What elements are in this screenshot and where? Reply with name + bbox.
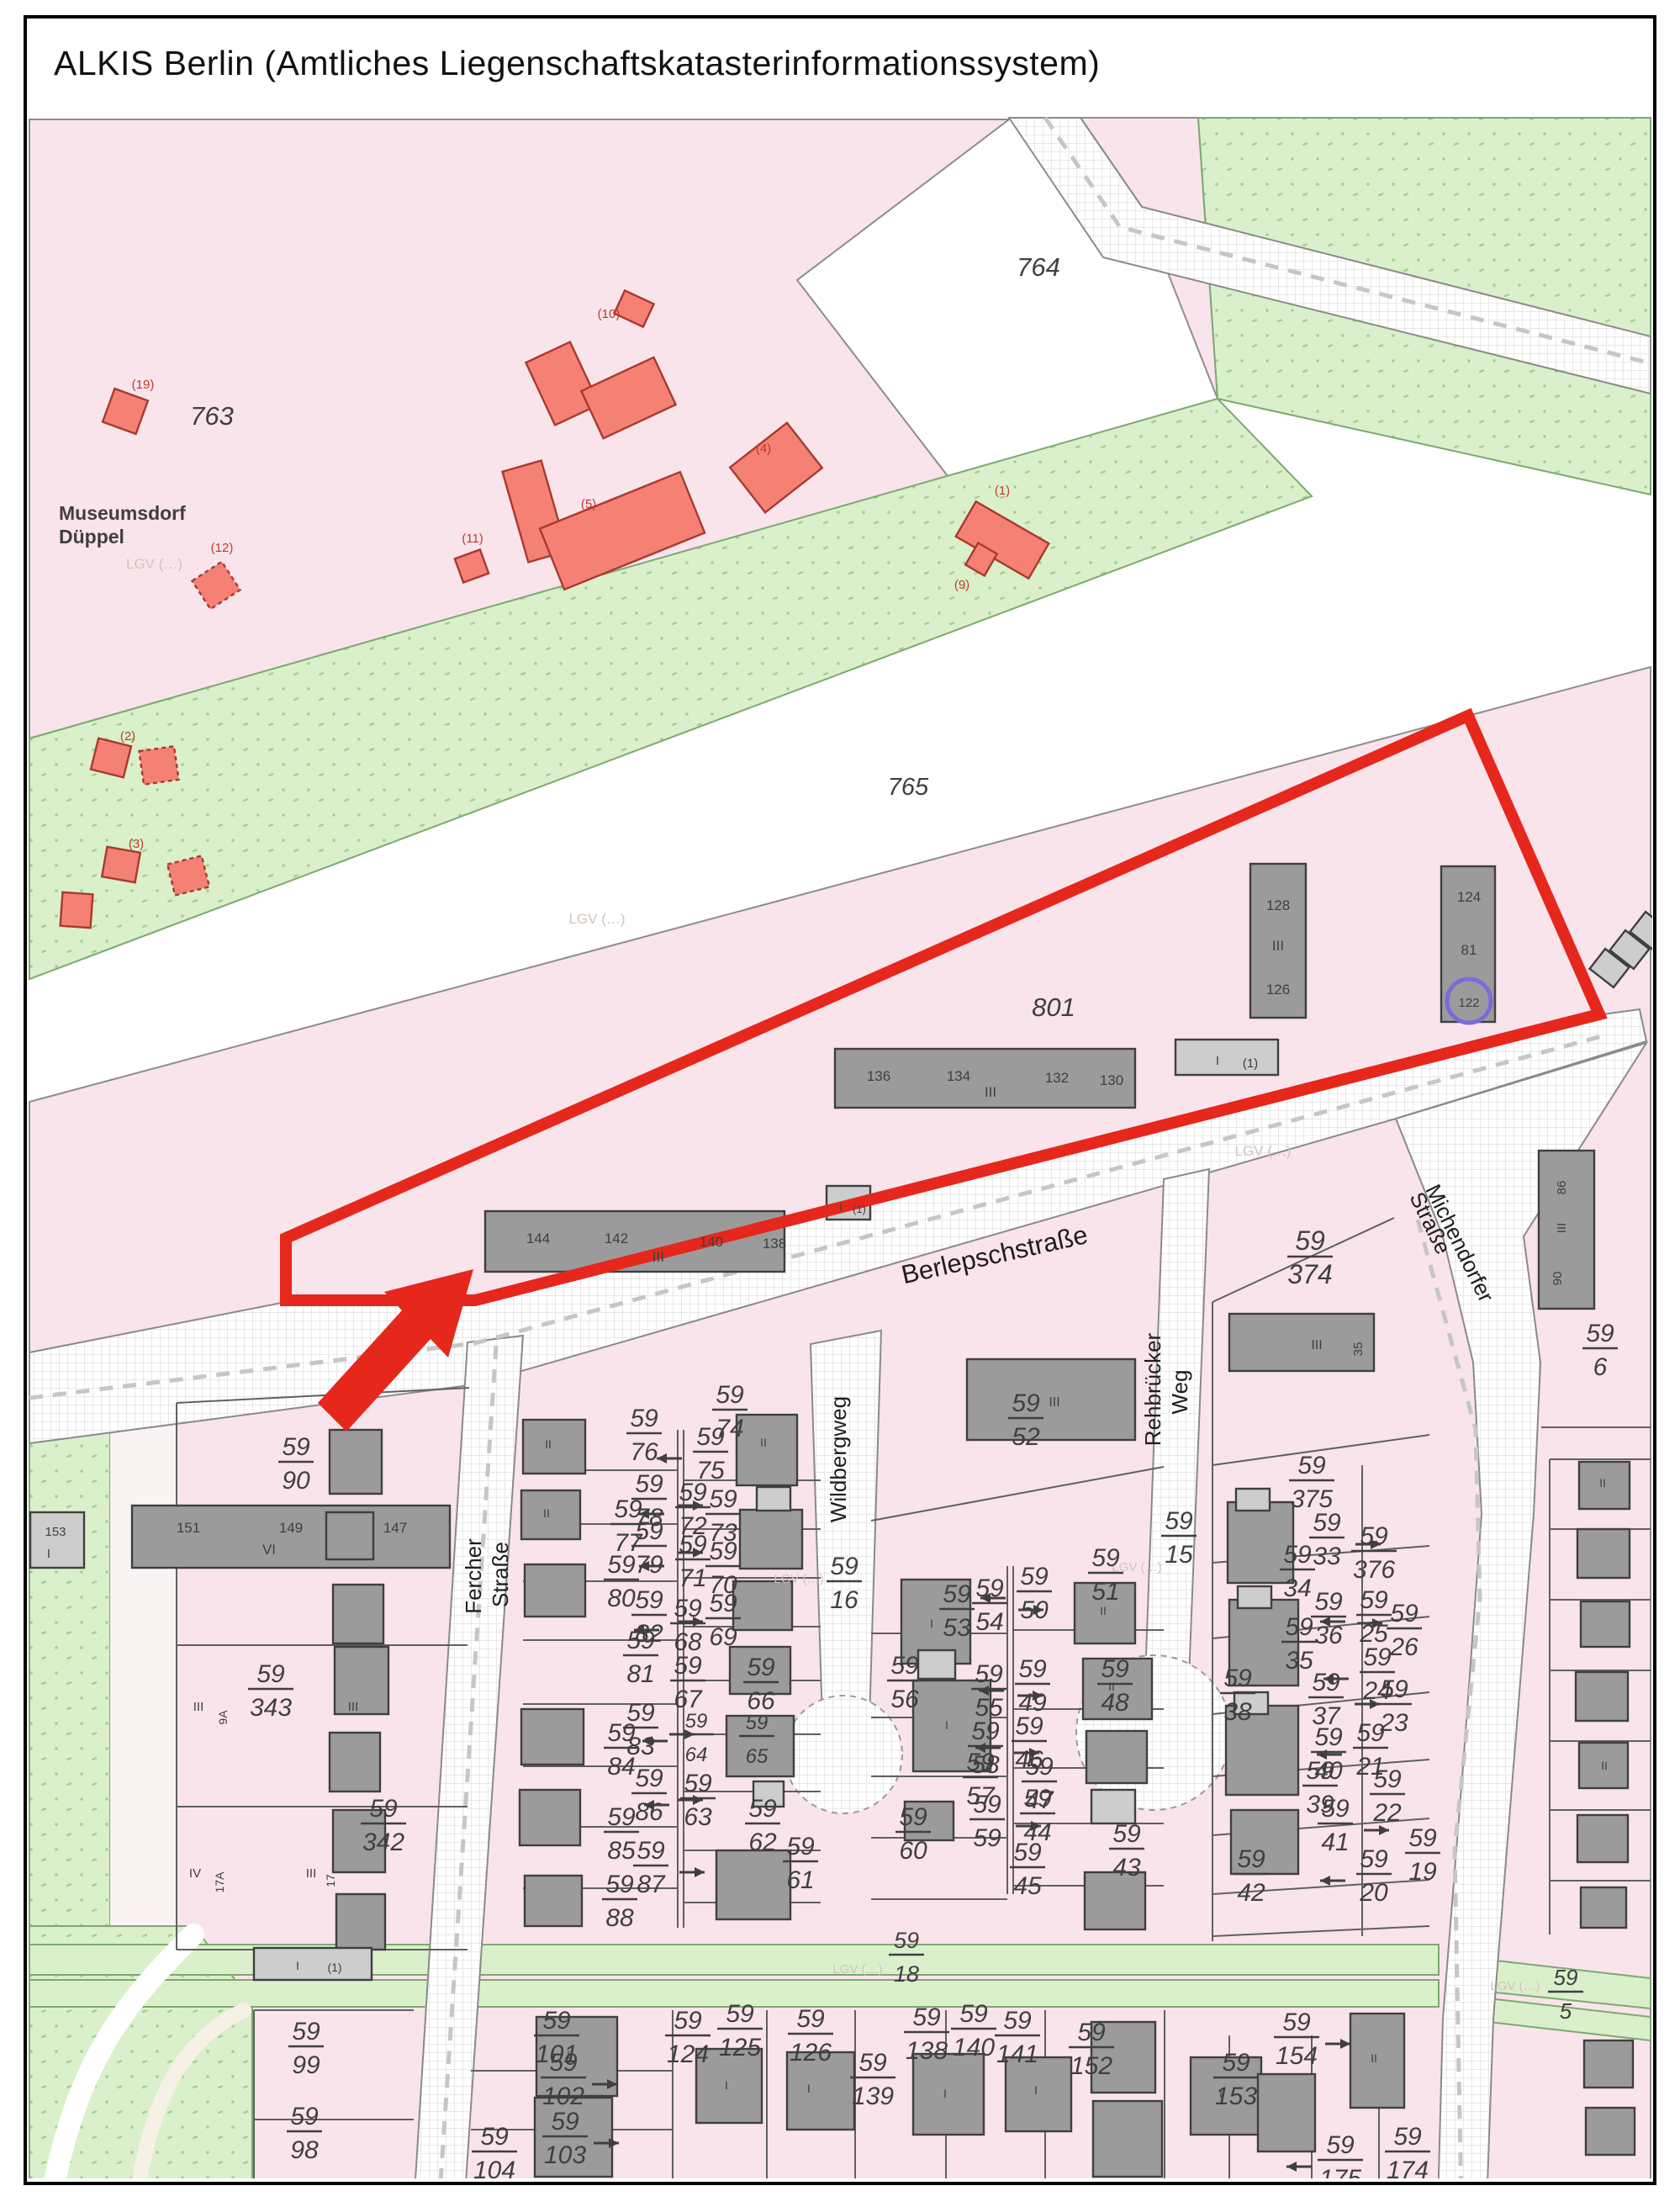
parcel-number-numerator: 59 xyxy=(1015,1712,1043,1740)
parcel-number-numerator: 59 xyxy=(912,2003,941,2031)
parcel-number-numerator: 59 xyxy=(1003,2007,1032,2035)
map-label: I xyxy=(567,2048,570,2061)
map-label: 763 xyxy=(190,401,234,431)
parcel-number-numerator: 59 xyxy=(971,1717,1000,1745)
building xyxy=(918,1650,955,1679)
parcel-number-denominator: 88 xyxy=(605,1904,634,1932)
map-label: Rehbrücker xyxy=(1140,1332,1165,1446)
building xyxy=(737,1415,797,1485)
label-text: II xyxy=(1601,1759,1608,1772)
label-text: III xyxy=(1311,1338,1322,1352)
label-text: (19) xyxy=(132,378,155,392)
parcel-number-numerator: 59 xyxy=(1373,1765,1402,1793)
parcel-number-numerator: 59 xyxy=(1380,1675,1408,1703)
building xyxy=(525,1564,585,1617)
label-text: (1) xyxy=(995,484,1010,498)
label-text: 140 xyxy=(700,1234,723,1250)
building xyxy=(1091,1790,1135,1823)
map-label: I xyxy=(47,1547,50,1561)
label-text: (1) xyxy=(1243,1056,1258,1071)
map-label: Fercher xyxy=(461,1538,486,1614)
map-label: (3) xyxy=(129,837,144,851)
map-label: 149 xyxy=(279,1520,303,1536)
map-label: LGV (…) xyxy=(832,1962,882,1977)
parcel-number-numerator: 59 xyxy=(1091,1544,1120,1572)
parcel-number-numerator: 59 xyxy=(1112,1820,1141,1848)
parcel-number-denominator: 103 xyxy=(544,2141,586,2169)
map-label: (4) xyxy=(756,442,771,456)
parcel-number-denominator: 376 xyxy=(1353,1556,1395,1584)
map-label: (11) xyxy=(462,532,483,546)
label-text: II xyxy=(1371,2051,1377,2065)
label-text: (1) xyxy=(327,1961,341,1974)
label-text: (10) xyxy=(598,307,621,321)
parcel-number-denominator: 85 xyxy=(607,1837,636,1865)
label-text: LGV (…) xyxy=(126,556,182,572)
parcel-number-denominator: 43 xyxy=(1112,1854,1141,1882)
map-label: (9) xyxy=(954,578,969,592)
parcel-number-numerator: 59 xyxy=(1101,1655,1129,1683)
parcel-number-numerator: 59 xyxy=(1282,2009,1311,2036)
label-text: 128 xyxy=(1266,897,1290,913)
parcel-number-numerator: 59 xyxy=(369,1795,398,1823)
parcel-number-denominator: 154 xyxy=(1276,2042,1318,2070)
building xyxy=(132,1506,450,1568)
label-text: 134 xyxy=(947,1068,970,1084)
parcel-number-numerator: 59 xyxy=(696,1423,725,1451)
parcel-number-numerator: 59 xyxy=(1390,1600,1418,1627)
map-label: 140 xyxy=(700,1234,723,1250)
building xyxy=(326,1512,373,1559)
building xyxy=(1238,1586,1271,1608)
parcel-number-numerator: 59 xyxy=(674,2007,702,2035)
map-label: 126 xyxy=(1266,982,1290,998)
parcel-number-denominator: 140 xyxy=(953,2034,995,2061)
label-text: III xyxy=(985,1084,996,1100)
label-text: I xyxy=(839,1200,843,1214)
label-text: Fercher xyxy=(461,1538,486,1614)
building xyxy=(254,1948,372,1980)
parcel-number-numerator: 59 xyxy=(973,1791,1001,1818)
building xyxy=(1350,2014,1404,2108)
parcel-number-denominator: 342 xyxy=(362,1829,404,1856)
label-text: (4) xyxy=(756,442,771,456)
parcel-number-numerator: 59 xyxy=(684,1770,712,1797)
map-label: 136 xyxy=(867,1068,890,1084)
parcel-number-denominator: 52 xyxy=(1012,1423,1040,1451)
label-text: 130 xyxy=(1100,1072,1123,1088)
label-text: III xyxy=(193,1700,204,1714)
label-text: I xyxy=(1219,2087,1223,2100)
parcel-number-numerator: 59 xyxy=(975,1660,1003,1688)
parcel-number-denominator: 64 xyxy=(685,1744,708,1766)
label-text: 142 xyxy=(605,1231,628,1246)
parcel-number-numerator: 59 xyxy=(607,1803,636,1831)
building xyxy=(335,1647,388,1714)
label-text: (3) xyxy=(129,837,144,851)
parcel-number-numerator: 59 xyxy=(1295,1225,1325,1256)
building xyxy=(1006,2057,1071,2131)
parcel-number-numerator: 59 xyxy=(626,1627,655,1654)
parcel-number-numerator: 59 xyxy=(685,1710,708,1733)
label-text: 122 xyxy=(1458,996,1479,1010)
building xyxy=(1576,1672,1628,1721)
parcel-number-denominator: 15 xyxy=(1165,1541,1193,1569)
map-label: (5) xyxy=(581,497,596,511)
map-label: (1) xyxy=(995,484,1010,498)
parcel-number-numerator: 59 xyxy=(1013,1839,1042,1866)
building xyxy=(1586,2108,1635,2155)
label-text: VI xyxy=(262,1542,276,1558)
label-text: 86 xyxy=(1555,1181,1569,1195)
parcel-number-numerator: 59 xyxy=(290,2103,319,2130)
parcel-number-denominator: 81 xyxy=(626,1660,654,1688)
map-label: LGV (…) xyxy=(126,556,182,572)
label-text: 765 xyxy=(888,774,929,801)
map-label: III xyxy=(348,1700,359,1714)
parcel-number-numerator: 59 xyxy=(1222,2049,1250,2077)
parcel-number-denominator: 126 xyxy=(790,2039,832,2067)
parcel-number-numerator: 59 xyxy=(1020,1563,1049,1590)
parcel-number-numerator: 59 xyxy=(1283,1541,1312,1569)
building xyxy=(520,1790,580,1845)
map-label: I xyxy=(945,1718,948,1732)
building xyxy=(330,1430,382,1494)
label-text: (5) xyxy=(581,497,596,511)
map-label: 86 xyxy=(1555,1181,1569,1195)
parcel-number-denominator: 48 xyxy=(1101,1689,1129,1717)
label-text: 124 xyxy=(1457,889,1481,905)
map-label: VI xyxy=(262,1542,276,1558)
parcel-number-numerator: 59 xyxy=(1408,1824,1437,1852)
parcel-number-numerator: 59 xyxy=(605,1871,634,1898)
parcel-number-numerator: 59 xyxy=(716,1381,744,1409)
map-label: II xyxy=(1371,2051,1377,2065)
parcel-number-numerator: 59 xyxy=(748,1795,777,1823)
parcel-number-denominator: 20 xyxy=(1359,1879,1388,1907)
map-label: 35 xyxy=(1351,1342,1366,1357)
parcel-number-numerator: 59 xyxy=(282,1433,310,1461)
label-text: Weg xyxy=(1167,1370,1192,1415)
parcel-number-numerator: 59 xyxy=(1360,1845,1388,1873)
building xyxy=(1581,1601,1630,1647)
parcel-number-denominator: 5 xyxy=(1560,1998,1572,2024)
map-label: III xyxy=(985,1084,996,1100)
parcel-number-numerator: 59 xyxy=(635,1470,663,1498)
label-text: LGV (…) xyxy=(1234,1143,1291,1159)
label-text: Düppel xyxy=(59,526,124,548)
label-text: 138 xyxy=(763,1236,786,1252)
parcel-number-numerator: 59 xyxy=(1165,1507,1193,1535)
map-label: 151 xyxy=(177,1520,200,1536)
map-canvas: MuseumsdorfDüppel763764765801LGV (…)LGV … xyxy=(0,0,1680,2207)
map-label: (12) xyxy=(211,541,234,555)
label-text: I xyxy=(725,2078,728,2092)
map-label: (1) xyxy=(853,1203,866,1215)
label-text: (11) xyxy=(462,532,483,546)
label-text: III xyxy=(1272,938,1284,954)
label-text: LGV (…) xyxy=(774,1572,823,1586)
map-label: II xyxy=(543,1506,550,1520)
map-label: 142 xyxy=(605,1231,628,1246)
building xyxy=(1236,1489,1270,1511)
parcel-number-numerator: 59 xyxy=(674,1652,702,1680)
building xyxy=(913,2054,984,2135)
label-text: Rehbrücker xyxy=(1140,1332,1165,1446)
parcel-number-numerator: 59 xyxy=(635,1586,663,1614)
label-text: III xyxy=(306,1866,317,1881)
label-text: III xyxy=(652,1249,664,1265)
pale-path-strip xyxy=(110,1421,176,1950)
label-text: 90 xyxy=(1551,1272,1565,1286)
label-text: 17A xyxy=(213,1871,226,1893)
parcel-number-denominator: 34 xyxy=(1283,1575,1311,1602)
map-label: II xyxy=(1601,1759,1608,1772)
parcel-number-numerator: 59 xyxy=(549,2049,578,2077)
map-label: III xyxy=(1049,1395,1059,1410)
label-text: II xyxy=(1599,1476,1606,1490)
museum-building xyxy=(139,746,178,784)
building xyxy=(525,1876,582,1926)
map-label: II xyxy=(1599,1476,1606,1490)
building xyxy=(1093,2101,1162,2177)
parcel-number-denominator: 51 xyxy=(1091,1578,1119,1606)
parcel-number-denominator: 16 xyxy=(830,1586,858,1614)
label-text: I xyxy=(1216,1054,1219,1068)
parcel-number-denominator: 35 xyxy=(1285,1647,1313,1675)
label-text: 149 xyxy=(279,1520,303,1536)
label-text: (9) xyxy=(954,578,969,592)
label-text: LGV (…) xyxy=(832,1962,882,1977)
building xyxy=(733,1581,792,1630)
turnaround-wildbergweg xyxy=(785,1696,902,1813)
map-label: II xyxy=(1100,1604,1107,1617)
map-label: 9A xyxy=(216,1710,230,1725)
museum-building xyxy=(91,738,131,778)
parcel-number-denominator: 41 xyxy=(1321,1829,1349,1856)
label-text: II xyxy=(543,1506,550,1520)
building xyxy=(1258,2074,1315,2151)
building xyxy=(757,1487,790,1511)
parcel-number-denominator: 59 xyxy=(973,1824,1001,1852)
alkis-page: ALKIS Berlin (Amtliches Liegenschaftskat… xyxy=(0,0,1680,2207)
map-label: III xyxy=(306,1866,317,1881)
parcel-number-numerator: 59 xyxy=(1025,1753,1054,1781)
parcel-number-numerator: 59 xyxy=(1314,1588,1343,1616)
parcel-number-denominator: 61 xyxy=(786,1866,814,1894)
building xyxy=(336,1894,385,1950)
map-label: I xyxy=(1216,1054,1219,1068)
parcel-number-denominator: 343 xyxy=(250,1694,292,1722)
label-text: (12) xyxy=(211,541,234,555)
map-label: (1) xyxy=(327,1961,341,1974)
parcel-number-numerator: 59 xyxy=(894,1928,919,1953)
parcel-number-denominator: 374 xyxy=(1287,1259,1332,1289)
label-text: 17 xyxy=(324,1874,337,1887)
parcel-number-numerator: 59 xyxy=(679,1531,707,1559)
map-label: 134 xyxy=(947,1068,970,1084)
label-text: II xyxy=(1100,1604,1107,1617)
parcel-number-numerator: 59 xyxy=(551,2108,579,2136)
building xyxy=(330,1733,380,1792)
map-label: III xyxy=(1272,938,1284,954)
parcel-number-denominator: 175 xyxy=(1319,2165,1361,2193)
parcel-number-denominator: 50 xyxy=(1020,1596,1049,1624)
parcel-number-denominator: 98 xyxy=(290,2136,319,2164)
parcel-number-numerator: 59 xyxy=(1356,1719,1385,1747)
parcel-number-denominator: 45 xyxy=(1013,1872,1042,1900)
museum-building xyxy=(102,847,140,882)
parcel-number-denominator: 6 xyxy=(1593,1353,1608,1381)
label-text: (2) xyxy=(120,729,135,744)
map-label: Wildbergweg xyxy=(826,1396,851,1522)
map-label: 764 xyxy=(1017,252,1060,282)
map-label: I xyxy=(1034,2083,1038,2097)
map-label: 90 xyxy=(1551,1272,1565,1286)
parcel-number-numerator: 59 xyxy=(607,1719,636,1747)
map-label: 124 xyxy=(1457,889,1481,905)
parcel-number-denominator: 62 xyxy=(748,1829,777,1856)
building xyxy=(1577,1815,1628,1862)
label-text: 153 xyxy=(45,1525,66,1539)
parcel-number-numerator: 59 xyxy=(1018,1655,1047,1683)
map-label: LGV (…) xyxy=(774,1572,823,1586)
label-text: LGV (…) xyxy=(568,911,625,927)
map-label: (2) xyxy=(120,729,135,744)
parcel-number-numerator: 59 xyxy=(1297,1452,1326,1479)
label-text: 81 xyxy=(1461,942,1477,958)
label-text: 35 xyxy=(1351,1342,1366,1357)
parcel-number-denominator: 54 xyxy=(975,1608,1003,1636)
map-label: II xyxy=(760,1436,767,1449)
label-text: 147 xyxy=(383,1520,407,1536)
parcel-number-numerator: 59 xyxy=(1077,2019,1106,2046)
label-text: II xyxy=(760,1436,767,1449)
label-text: I xyxy=(930,1617,933,1630)
parcel-number-numerator: 59 xyxy=(674,1595,702,1622)
label-text: 132 xyxy=(1045,1070,1069,1086)
map-label: I xyxy=(807,2082,811,2095)
map-label: II xyxy=(1108,1680,1115,1693)
label-text: 136 xyxy=(867,1068,890,1084)
label-text: I xyxy=(47,1547,50,1561)
map-label: (10) xyxy=(598,307,621,321)
map-label: 122 xyxy=(1458,996,1479,1010)
label-text: I xyxy=(807,2082,811,2095)
parcel-number-numerator: 59 xyxy=(1393,2123,1422,2151)
parcel-number-numerator: 59 xyxy=(480,2123,509,2151)
parcel-number-denominator: 84 xyxy=(607,1753,635,1781)
label-text: III xyxy=(1049,1395,1059,1410)
parcel-number-numerator: 59 xyxy=(1586,1320,1614,1347)
parcel-number-denominator: 22 xyxy=(1372,1799,1402,1827)
parcel-number-numerator: 59 xyxy=(890,1652,919,1680)
parcel-number-numerator: 59 xyxy=(1312,1669,1340,1696)
building xyxy=(333,1585,383,1643)
parcel-number-denominator: 99 xyxy=(292,2051,320,2079)
map-label: 144 xyxy=(526,1231,550,1246)
parcel-number-numerator: 59 xyxy=(858,2049,887,2077)
parcel-number-numerator: 59 xyxy=(637,1837,665,1865)
map-label: I xyxy=(930,1617,933,1630)
label-text: 126 xyxy=(1266,982,1290,998)
parcel-number-numerator: 59 xyxy=(1285,1613,1313,1641)
parcel-number-numerator: 59 xyxy=(679,1479,707,1506)
map-label: (19) xyxy=(132,378,155,392)
parcel-number-numerator: 59 xyxy=(292,2018,320,2046)
parcel-number-numerator: 59 xyxy=(959,2000,988,2028)
parcel-number-numerator: 59 xyxy=(746,1712,769,1734)
parcel-number-denominator: 71 xyxy=(679,1564,706,1592)
building xyxy=(523,1420,585,1474)
building xyxy=(521,1709,584,1765)
parcel-number-numerator: 59 xyxy=(747,1654,775,1681)
map-label: I xyxy=(725,2078,728,2092)
label-text: II xyxy=(1108,1680,1115,1693)
parcel-number-numerator: 59 xyxy=(1554,1965,1578,1990)
parcel-number-numerator: 59 xyxy=(1223,1665,1252,1692)
map-label: LGV (…) xyxy=(1490,1979,1540,1993)
label-text: (1) xyxy=(853,1203,866,1215)
parcel-number-numerator: 59 xyxy=(726,2000,754,2028)
parcel-number-denominator: 60 xyxy=(899,1837,927,1865)
label-text: 9A xyxy=(216,1710,230,1725)
parcel-number-numerator: 59 xyxy=(607,1551,636,1579)
parcel-number-denominator: 124 xyxy=(667,2040,709,2068)
parcel-number-numerator: 59 xyxy=(1023,1785,1052,1813)
parcel-number-denominator: 38 xyxy=(1223,1698,1252,1726)
map-label: 128 xyxy=(1266,897,1290,913)
parcel-number-denominator: 80 xyxy=(607,1585,636,1612)
street-wildbergweg xyxy=(811,1331,881,1721)
parcel-number-denominator: 87 xyxy=(637,1871,666,1898)
building xyxy=(1584,2040,1633,2088)
label-text: LGV (…) xyxy=(1490,1979,1540,1993)
parcel-number-numerator: 59 xyxy=(256,1660,285,1688)
label-text: II xyxy=(545,1437,552,1451)
building xyxy=(1577,1529,1630,1578)
parcel-number-numerator: 59 xyxy=(1237,1845,1265,1873)
parcel-number-denominator: 42 xyxy=(1237,1879,1265,1907)
label-text: I xyxy=(296,1959,299,1972)
parcel-number-denominator: 102 xyxy=(542,2083,584,2110)
parcel-number-denominator: 138 xyxy=(906,2037,948,2065)
label-text: 144 xyxy=(526,1231,550,1246)
parcel-number-numerator: 59 xyxy=(709,1590,737,1617)
parcel-number-denominator: 56 xyxy=(890,1686,919,1713)
parcel-number-denominator: 141 xyxy=(996,2040,1038,2068)
building xyxy=(716,1850,790,1919)
parcel-number-numerator: 59 xyxy=(1363,1643,1392,1671)
map-label: 17 xyxy=(324,1874,337,1887)
map-label: 138 xyxy=(763,1236,786,1252)
map-label: I xyxy=(296,1959,299,1972)
label-text: Museumsdorf xyxy=(59,502,186,524)
building xyxy=(30,1512,84,1568)
parcel-number-denominator: 104 xyxy=(473,2157,515,2184)
parcel-number-denominator: 65 xyxy=(746,1745,769,1768)
parcel-number-denominator: 69 xyxy=(709,1623,737,1651)
label-text: IV xyxy=(189,1866,201,1881)
building xyxy=(1175,1040,1278,1075)
parcel-number-denominator: 33 xyxy=(1313,1543,1341,1570)
label-text: 763 xyxy=(190,401,234,431)
building xyxy=(740,1510,802,1569)
parcel-number-denominator: 174 xyxy=(1387,2157,1429,2184)
parcel-number-numerator: 59 xyxy=(899,1803,927,1831)
parcel-number-numerator: 59 xyxy=(1012,1389,1040,1417)
map-label: G xyxy=(1662,257,1678,283)
